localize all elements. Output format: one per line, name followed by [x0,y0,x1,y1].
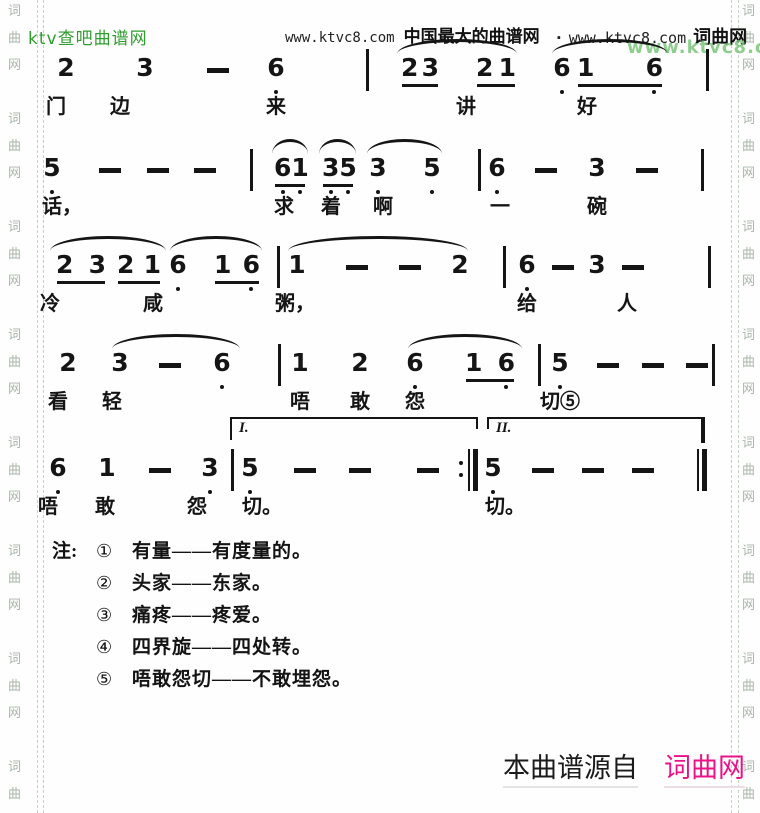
note-digit: 1 [577,55,594,82]
note-digit: 5 [339,155,356,182]
note-digit: 2 [59,350,76,377]
dash-continuation [632,468,654,473]
volta-label: I. [239,421,249,436]
lyric-syllable: 唔 [290,390,310,414]
footnote-text: 四界旋——四处转。 [132,632,312,664]
note: 1 [284,252,310,279]
dash-continuation [99,168,121,173]
barline-single [708,246,711,288]
footnote-text: 头家——东家。 [132,568,272,600]
lyric-syllable: 边 [110,95,130,119]
note: 6 [263,55,289,82]
footnote-label: 注: [52,536,96,568]
footnote-row: ②头家——东家。 [52,568,352,600]
barline-thin [468,449,470,491]
repeat-dot [459,461,463,465]
note-digit: 3 [201,455,218,482]
lyric-syllable: 粥， [275,292,315,316]
note-digit: 5 [551,350,568,377]
footnote-row: ④四界旋——四处转。 [52,632,352,664]
note-digit: 1 [291,155,308,182]
note-digit: 6 [49,455,66,482]
system-3: 23216161263冷咸粥，给人 [0,252,760,342]
note: 21 [476,55,516,82]
note: 5 [547,350,573,377]
note-digit: 6 [488,155,505,182]
dash-continuation [532,468,554,473]
footnote-row: ⑤唔敢怨切——不敢埋怨。 [52,664,352,696]
barline-single [701,149,704,191]
page: 词曲网词曲网词曲网词曲网词曲网词曲网词曲网词曲网 词曲网词曲网词曲网词曲网词曲网… [0,0,760,813]
note: 3 [584,252,610,279]
barline-single [478,149,481,191]
dash-continuation [147,168,169,173]
lyric-syllable: 看 [48,390,68,414]
footnote-row: ③痛疼——疼爱。 [52,600,352,632]
dash-continuation [349,468,371,473]
note-digit: 3 [322,155,339,182]
note-digit: 2 [476,55,493,82]
barline-single [277,246,280,288]
note-digit: 6 [406,350,423,377]
lyric-syllable: 碗 [587,195,607,219]
lyric-syllable: 着 [321,195,341,219]
lyric-syllable: 讲 [456,95,476,119]
barline-single [231,449,234,491]
footnote-text: 痛疼——疼爱。 [132,600,272,632]
note-digit: 6 [243,252,260,279]
note-digit: 5 [43,155,60,182]
footer-source-text: 本曲谱源自 [503,752,638,788]
footnote-number: ④ [96,632,132,664]
barline-single [538,344,541,386]
dash-continuation [417,468,439,473]
system-2: 561353563话，求着啊一碗 [0,155,760,245]
note: 6 [549,55,575,82]
dash-continuation [159,363,181,368]
lyric-syllable: 给 [517,292,537,316]
lyric-syllable: 切。 [242,495,282,519]
barline-single [712,344,715,386]
note-digit: 2 [56,252,73,279]
lyric-syllable: 敢 [95,495,115,519]
dash-continuation [636,168,658,173]
note: 5 [39,155,65,182]
note-digit: 1 [291,350,308,377]
lyric-syllable: 怨 [405,390,425,414]
volta-left-tick [230,418,232,440]
note: 1 [287,350,313,377]
note-digit: 6 [553,55,570,82]
note-digit: 2 [451,252,468,279]
dash-continuation [622,265,644,270]
lyric-syllable: 咸 [143,292,163,316]
note-digit: 6 [267,55,284,82]
note: 2 [447,252,473,279]
note-digit: 2 [117,252,134,279]
note: 6 [402,350,428,377]
dash-continuation [399,265,421,270]
system-1: 2362321616门边来讲好 [0,55,760,145]
footnote-row: 注:①有量——有度量的。 [52,536,352,568]
lyric-syllable: 冷 [40,292,60,316]
note: 6 [484,155,510,182]
footer-source: 本曲谱源自 词曲网 [503,752,745,788]
lyric-syllable: 话， [42,195,82,219]
note: 6 [45,455,71,482]
barline-single [706,49,709,91]
volta-right-tick [476,418,478,429]
note-digit: 2 [401,55,418,82]
barline-thin [697,449,699,491]
note: 23 [56,252,106,279]
lyric-syllable: 轻 [102,390,122,414]
note: 6 [514,252,540,279]
note: 3 [197,455,223,482]
note-digit: 6 [646,55,663,82]
footnote-text: 唔敢怨切——不敢埋怨。 [132,664,352,696]
lyric-syllable: 人 [617,292,637,316]
note-digit: 3 [588,252,605,279]
volta-left-tick [487,418,489,429]
note-digit: 3 [588,155,605,182]
volta-bracket-I: I. [230,417,478,443]
note: 2 [53,55,79,82]
note-digit: 3 [111,350,128,377]
note-digit: 6 [274,155,291,182]
note-digit: 1 [144,252,161,279]
note: 2 [55,350,81,377]
note-digit: 3 [369,155,386,182]
dash-continuation [346,265,368,270]
note-digit: 3 [136,55,153,82]
repeat-dot [459,473,463,477]
note-digit: 1 [98,455,115,482]
note-digit: 5 [241,455,258,482]
note-digit: 5 [423,155,440,182]
lyric-syllable: 敢 [350,390,370,414]
note-digit: 2 [351,350,368,377]
note: 23 [401,55,439,82]
note-digit: 1 [499,55,516,82]
note: 6 [209,350,235,377]
lyric-syllable: 啊 [373,195,393,219]
lyric-syllable: 一 [490,195,510,219]
note-digit: 6 [169,252,186,279]
dash-continuation [294,468,316,473]
note: 16 [577,55,663,82]
note: 21 [117,252,161,279]
note: 16 [465,350,515,377]
barline-single [503,246,506,288]
note: 35 [322,155,354,182]
note-digit: 6 [498,350,515,377]
note: 5 [237,455,263,482]
note: 3 [365,155,391,182]
lyric-syllable: 切⑤ [540,390,580,414]
barline-single [366,49,369,91]
dash-continuation [149,468,171,473]
dash-continuation [194,168,216,173]
volta-label: II. [496,421,511,436]
dash-continuation [642,363,664,368]
barline-thick [473,449,478,491]
dash-continuation [207,68,229,73]
note: 5 [419,155,445,182]
footnote-number: ③ [96,600,132,632]
lyric-syllable: 来 [266,95,286,119]
note-digit: 2 [57,55,74,82]
note: 3 [107,350,133,377]
note-digit: 6 [213,350,230,377]
note-digit: 6 [518,252,535,279]
footer-source-site-link[interactable]: 词曲网 [664,752,745,788]
barline-final [695,449,708,491]
lyric-syllable: 好 [577,95,597,119]
note-digit: 3 [89,252,106,279]
barline-thick [702,449,707,491]
note-digit: 1 [214,252,231,279]
lyric-syllable: 切。 [485,495,525,519]
dash-continuation [535,168,557,173]
note: 3 [584,155,610,182]
note: 61 [274,155,306,182]
note-digit: 1 [465,350,482,377]
footnote-number: ⑤ [96,664,132,696]
system-5: I.II.61355唔敢怨切。切。 [0,455,760,545]
note-digit: 3 [422,55,439,82]
footnotes: 注:①有量——有度量的。②头家——东家。③痛疼——疼爱。④四界旋——四处转。⑤唔… [52,536,352,696]
note-digit: 1 [288,252,305,279]
barline-repeat-end [466,449,479,491]
dash-continuation [597,363,619,368]
volta-bracket-II: II. [487,417,705,443]
note: 3 [132,55,158,82]
volta-right-tick [701,418,705,443]
lyric-syllable: 求 [274,195,294,219]
note: 2 [347,350,373,377]
barline-single [278,344,281,386]
footnote-text: 有量——有度量的。 [132,536,312,568]
dash-continuation [686,363,708,368]
note: 6 [165,252,191,279]
note: 16 [214,252,260,279]
note-digit: 5 [484,455,501,482]
note: 1 [94,455,120,482]
footnote-number: ① [96,536,132,568]
lyric-syllable: 怨 [187,495,207,519]
lyric-syllable: 门 [46,95,66,119]
dash-continuation [582,468,604,473]
footnote-number: ② [96,568,132,600]
dash-continuation [552,265,574,270]
lyric-syllable: 唔 [38,495,58,519]
barline-single [250,149,253,191]
note: 5 [480,455,506,482]
